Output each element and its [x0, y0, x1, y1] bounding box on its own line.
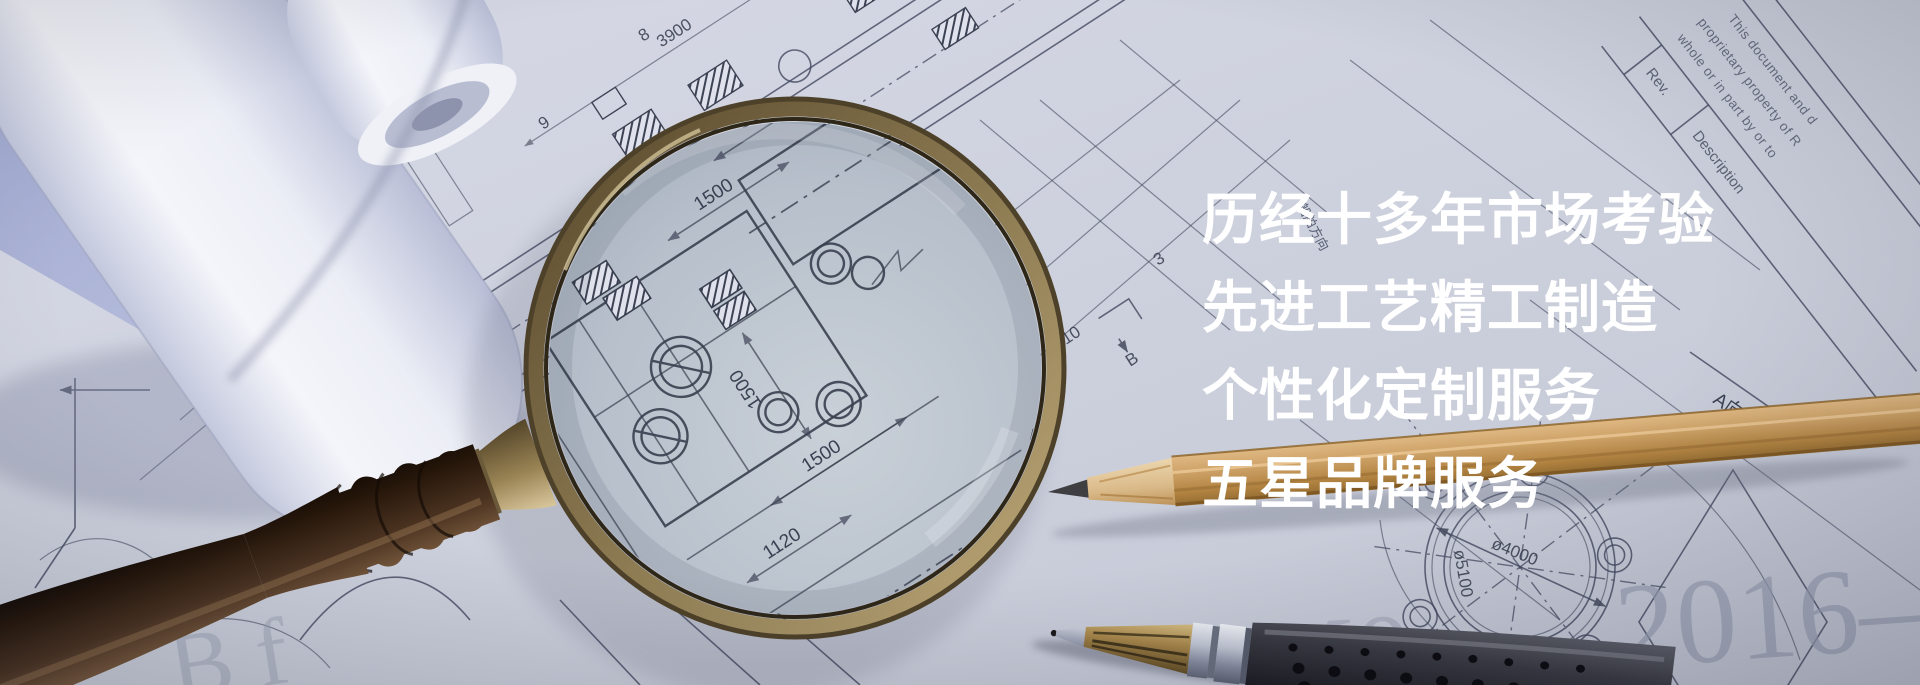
headline-line-2: 先进工艺精工制造: [1202, 264, 1715, 352]
hero-headline: 历经十多年市场考验 先进工艺精工制造 个性化定制服务 五星品牌服务: [1202, 176, 1715, 528]
hero-banner: 3900 600 8 9 3 B: [0, 0, 1920, 685]
headline-line-3: 个性化定制服务: [1202, 352, 1715, 440]
headline-line-1: 历经十多年市场考验: [1202, 176, 1715, 264]
headline-line-4: 五星品牌服务: [1202, 440, 1715, 528]
